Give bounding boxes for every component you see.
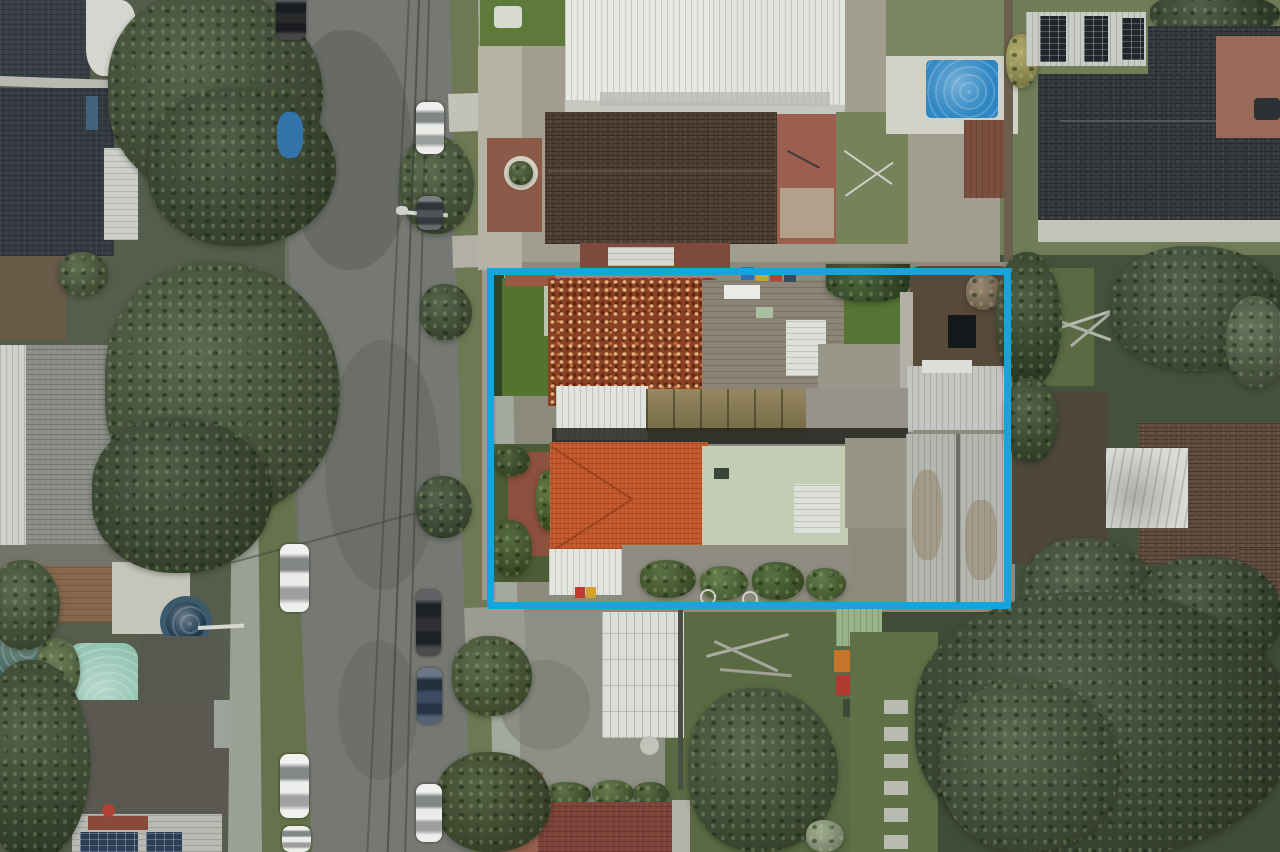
tree-bottom-right-giant-b	[940, 680, 1120, 852]
tr-garage-solar-2	[1084, 16, 1108, 62]
car-white-right-low	[416, 784, 442, 842]
car-white-left-bottom	[282, 826, 311, 852]
white-warehouse-right	[713, 0, 845, 106]
tan-garden-shed	[780, 188, 834, 238]
street-lamp-head	[396, 206, 408, 215]
tree-sidewalk-bottom-a	[452, 636, 532, 716]
verge-bush-2	[416, 476, 472, 538]
sidewalk-sign	[214, 700, 231, 748]
blue-tarp-under-tree	[277, 112, 303, 158]
garage-door-white	[608, 247, 674, 266]
tr-brick-court	[1216, 36, 1280, 138]
bm-flowering-bush	[806, 820, 844, 852]
front-planter-shrubs	[509, 161, 533, 185]
car-grey-right	[417, 196, 443, 230]
car-white-left-low	[280, 754, 309, 818]
br-stepping-path	[884, 700, 908, 852]
car-blue-right-low	[417, 668, 442, 724]
aerial-photograph	[0, 0, 1280, 852]
left-driveway-dirt	[0, 256, 66, 340]
bm-carport-roof	[602, 612, 684, 738]
property-boundary-highlight	[487, 268, 1011, 609]
car-white-left-mid	[280, 544, 309, 612]
tree-top-left-b	[148, 88, 336, 246]
tr-lawn-upper	[886, 0, 1008, 56]
white-ute-neighbour	[494, 6, 522, 28]
tree-left-mid-b	[92, 418, 272, 573]
warehouse-plant-units	[600, 92, 830, 106]
tl-skylights-blue	[86, 96, 98, 130]
car-black-top	[276, 0, 306, 40]
tr-garage-solar-1	[1040, 16, 1066, 62]
bl-red-pot	[102, 804, 115, 817]
car-white-van-right	[416, 102, 444, 154]
tree-right-column-c	[1004, 378, 1058, 462]
tr-dark-vehicle	[1254, 98, 1280, 120]
left-garden-shrub	[58, 252, 108, 296]
bm-satellite-dish	[640, 736, 659, 755]
verge-bush-1	[420, 284, 472, 340]
brown-house-roof	[545, 112, 777, 244]
swimming-pool	[926, 60, 998, 118]
tree-sidewalk-bottom-b	[436, 752, 551, 852]
bm-house-roof	[538, 802, 674, 852]
bm-boundary-fence	[678, 610, 683, 790]
brown-house-hip-light	[548, 170, 773, 172]
bl-house-red-strip	[88, 816, 148, 830]
white-warehouse-left	[565, 0, 713, 102]
car-black-right-low	[416, 590, 441, 656]
bl-solar-array-2	[146, 832, 182, 852]
tr-rear-path	[1038, 220, 1280, 242]
bl-solar-array-1	[80, 832, 138, 852]
lm-house-white-wing	[0, 345, 26, 560]
bm-house-path	[672, 800, 690, 852]
tr-garage-solar-3	[1122, 18, 1144, 60]
tl-house-roof-upper	[0, 0, 90, 80]
rm-tarp	[1106, 448, 1188, 528]
tree-right-flowering	[1226, 296, 1280, 388]
